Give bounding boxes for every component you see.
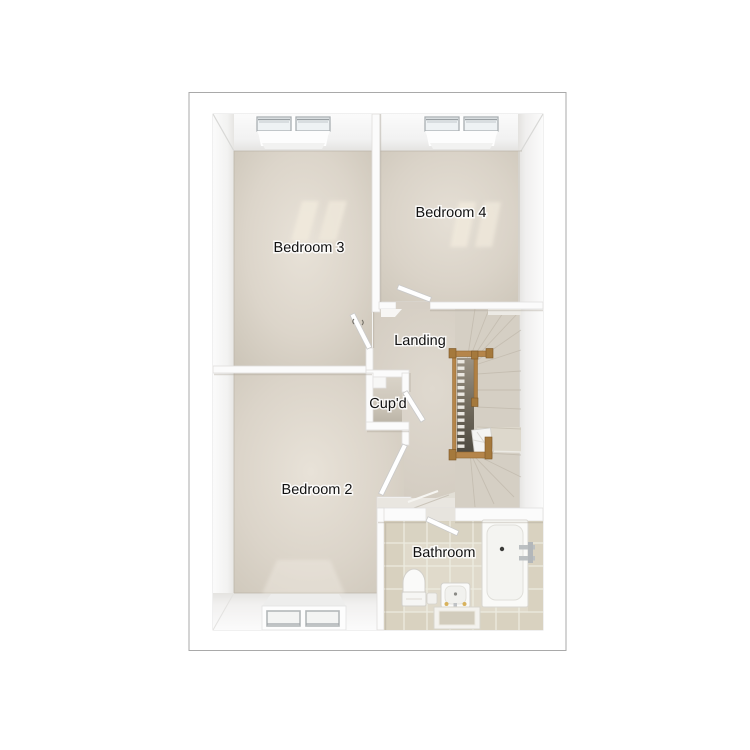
svg-text:Bedroom 4: Bedroom 4: [416, 205, 487, 221]
svg-text:Bedroom 2: Bedroom 2: [282, 482, 353, 498]
svg-text:Landing: Landing: [394, 333, 446, 349]
svg-text:Cup'd: Cup'd: [369, 396, 406, 412]
svg-text:Bedroom 3: Bedroom 3: [274, 240, 345, 256]
svg-text:Bathroom: Bathroom: [413, 545, 476, 561]
